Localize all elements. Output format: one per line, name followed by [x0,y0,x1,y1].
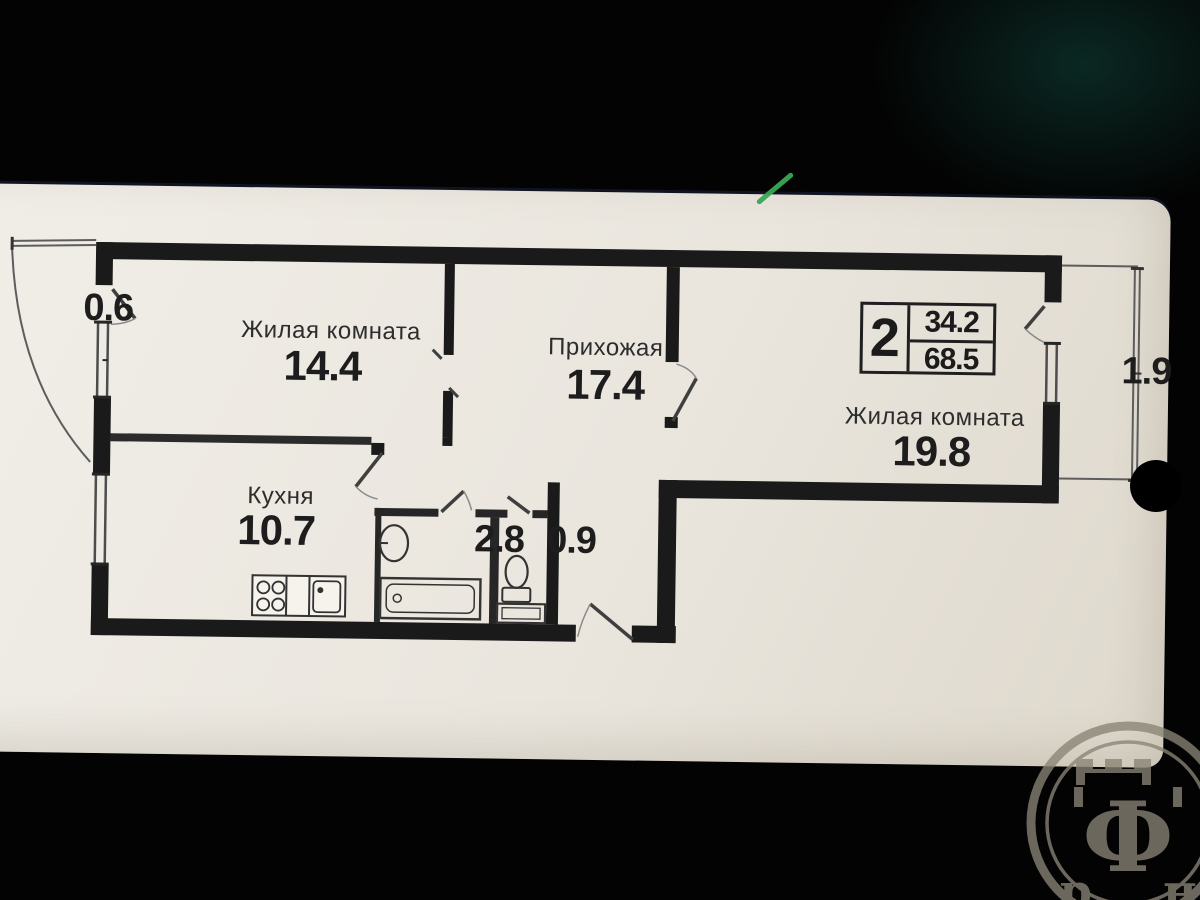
bath-sink-icon [379,525,408,561]
room-count: 2 [862,305,910,372]
room-area-living1: 14.4 [283,345,361,388]
floorplan-drawing: Жилая комната 14.4 Прихожая 17.4 Жилая к… [0,184,1170,768]
watermark-letter-right: н [1163,864,1197,900]
room-label-hallway: Прихожая [548,335,664,361]
room-area-kitchen: 10.7 [237,509,315,552]
watermark-emblem: Ф р н [1031,726,1200,900]
room-area-living2: 19.8 [892,430,970,473]
photo-of-floorplan: Жилая комната 14.4 Прихожая 17.4 Жилая к… [0,0,1200,900]
room-area-balcony-right: 1.9 [1121,352,1171,391]
room-label-living1: Жилая комната [241,318,421,345]
screen-reflection-glow [870,0,1200,215]
agency-watermark-logo: Ф р н [1008,721,1200,900]
toilet-icon [497,556,546,624]
living-area-value: 34.2 [910,305,994,343]
room-area-balcony-left: 0.6 [83,289,133,328]
room-area-hallway: 17.4 [566,364,644,407]
paper-edge-notch [1130,460,1182,512]
room-area-wc: 0.9 [546,521,596,560]
watermark-letter-center: Ф [1082,781,1173,894]
watermark-letter-left: р [1060,864,1092,900]
total-area-value: 68.5 [909,342,992,377]
apartment-summary-stamp: 2 34.2 68.5 [859,302,996,376]
bathtub-icon [380,578,481,619]
balcony-left-outline [9,237,96,462]
kitchen-fixtures [252,575,346,616]
room-area-bathroom: 2.8 [474,520,524,559]
floorplan-paper: Жилая комната 14.4 Прихожая 17.4 Жилая к… [0,183,1171,768]
floorplan-svg [0,184,1170,768]
